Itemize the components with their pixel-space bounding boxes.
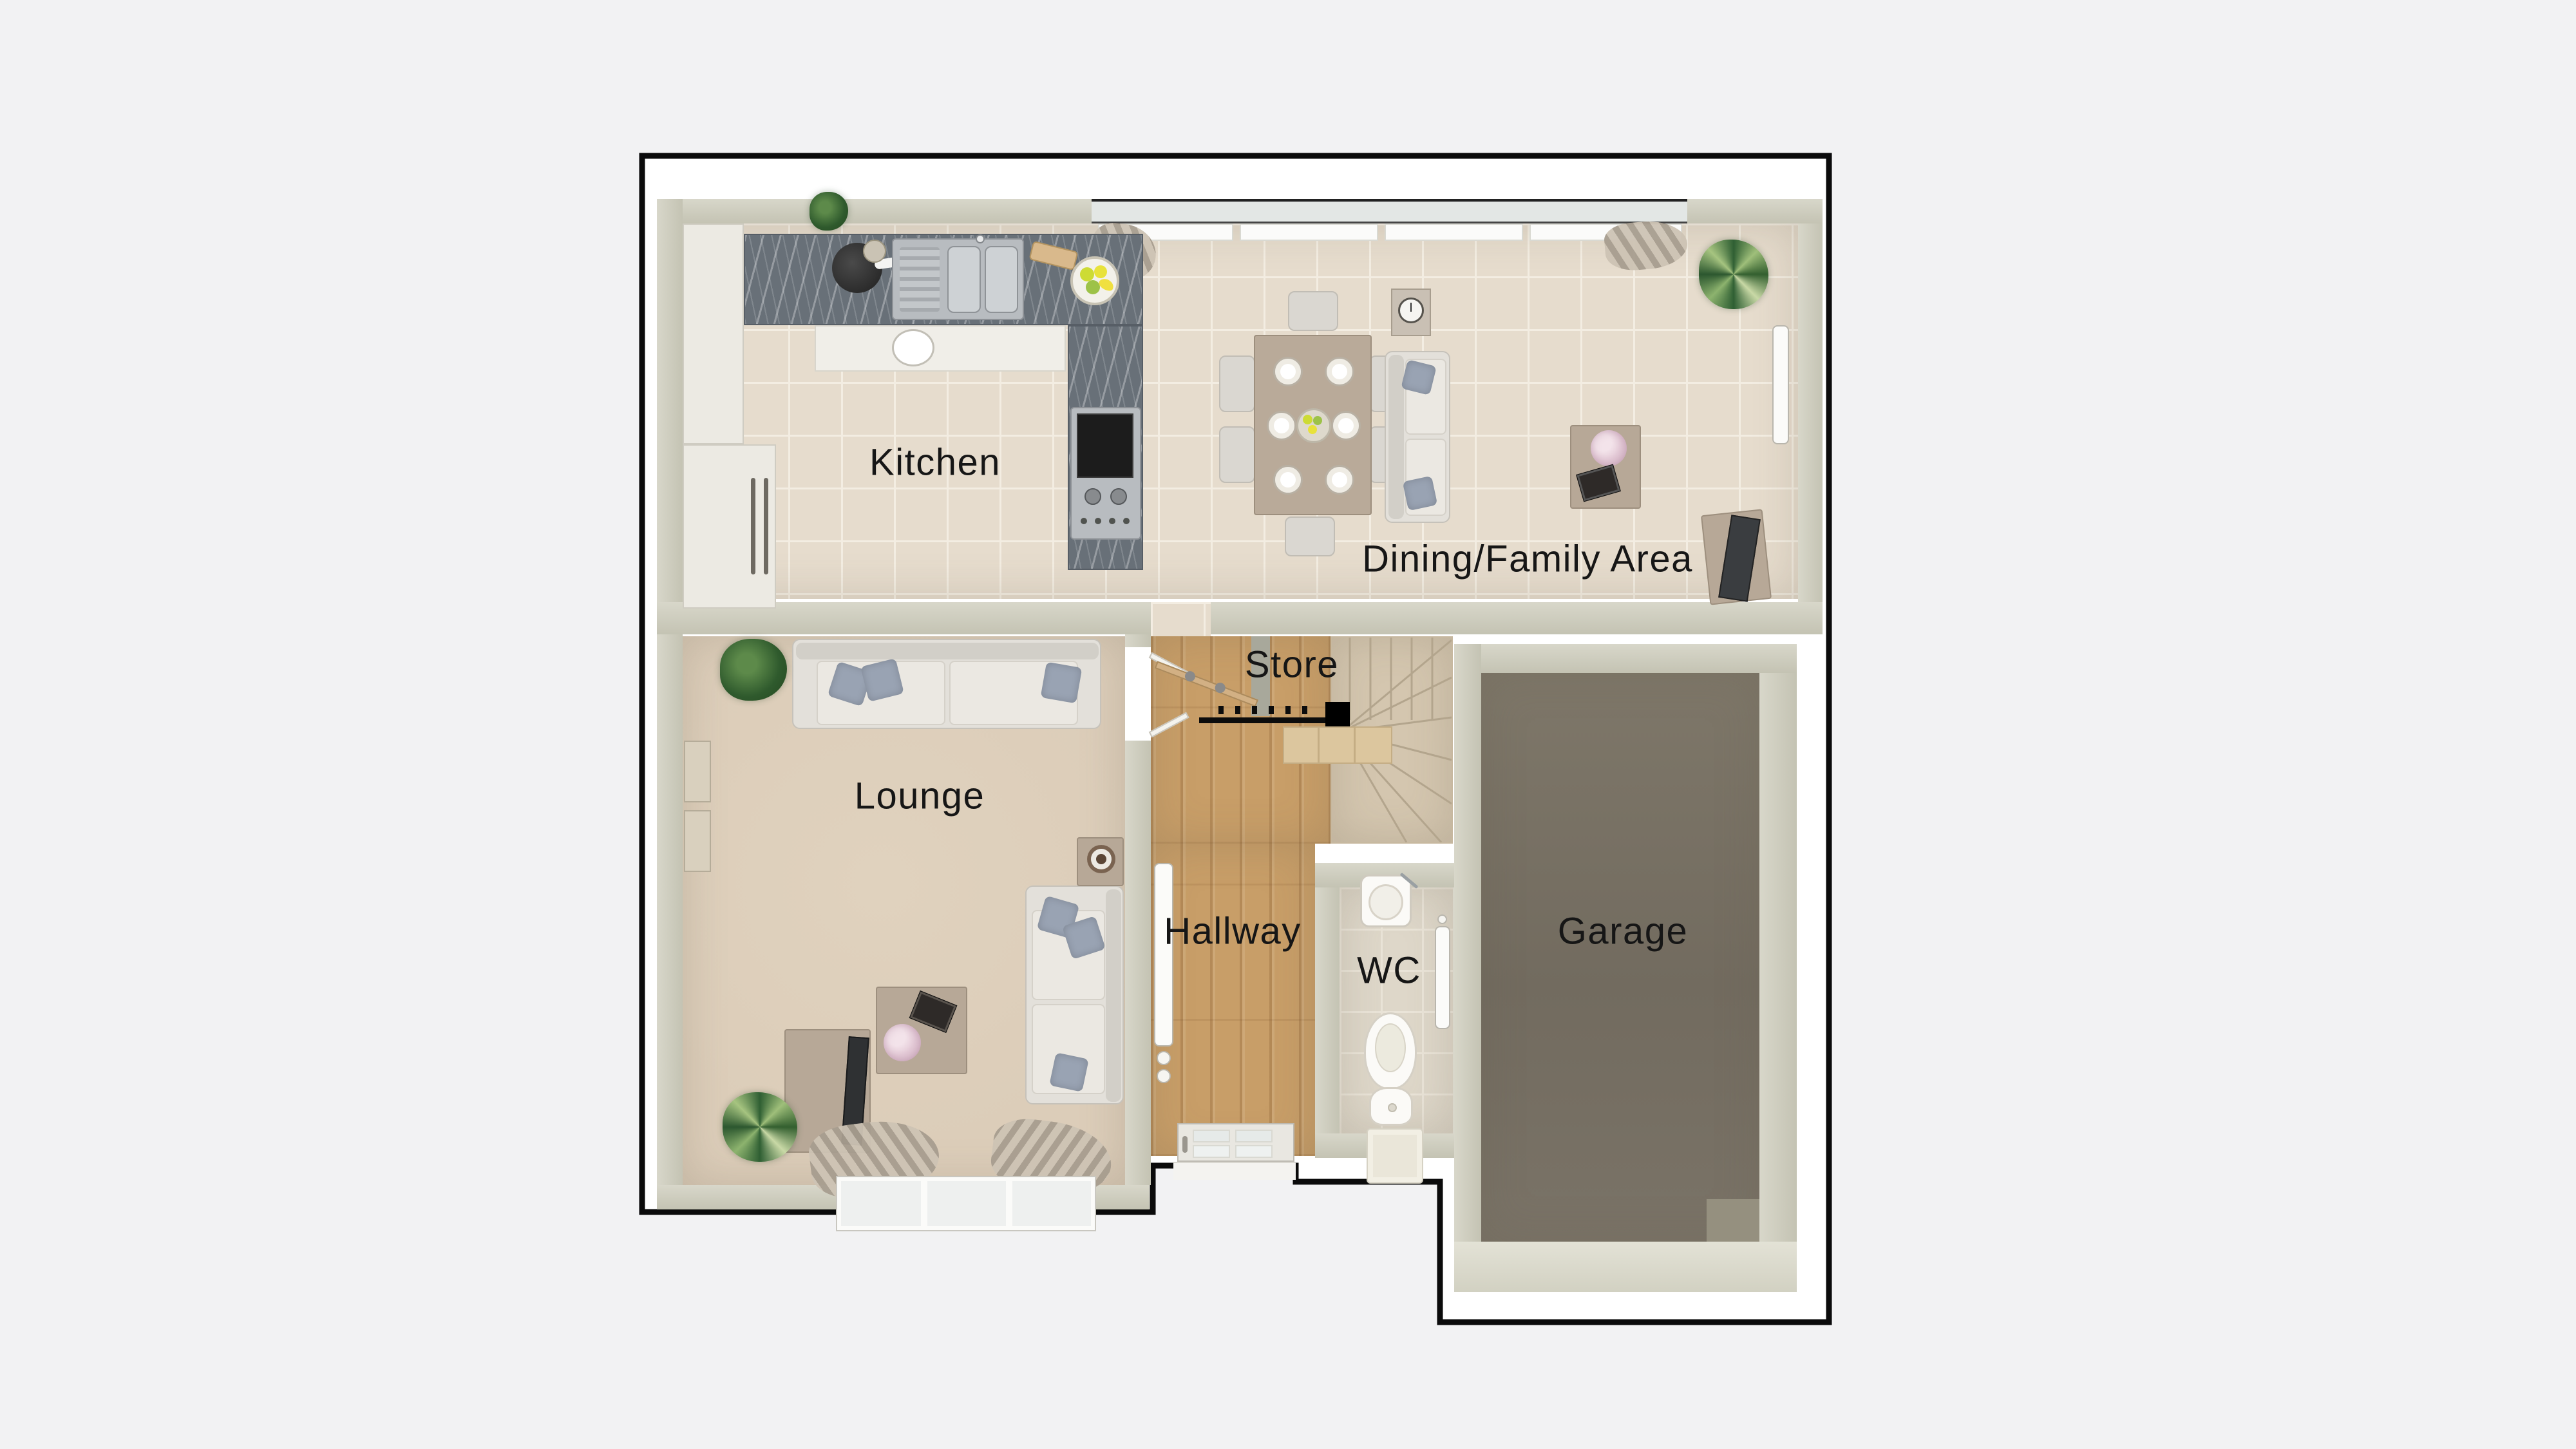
dining-table bbox=[1254, 335, 1372, 515]
wall-dining-right bbox=[1798, 223, 1823, 602]
kitchen-sink bbox=[892, 238, 1024, 320]
stair-rail-tick-1 bbox=[1218, 706, 1224, 714]
bifold-pane-2 bbox=[1240, 223, 1378, 241]
lounge-sofa-top bbox=[792, 639, 1101, 729]
side-table-flowers bbox=[1591, 430, 1627, 466]
garage-floor bbox=[1481, 673, 1759, 1242]
dining-plant bbox=[1699, 240, 1768, 309]
wall-garage-right bbox=[1759, 673, 1797, 1242]
room-label-wc: WC bbox=[1357, 949, 1421, 992]
stair-newel-post bbox=[1325, 702, 1350, 726]
kitchen-hallway-opening bbox=[1151, 602, 1211, 636]
room-label-store: Store bbox=[1245, 643, 1339, 687]
wall-garage-left bbox=[1454, 644, 1481, 1242]
room-label-lounge: Lounge bbox=[855, 775, 985, 818]
stair-rail-tick-4 bbox=[1269, 706, 1274, 714]
front-door bbox=[1177, 1123, 1294, 1162]
lounge-lamp bbox=[1087, 845, 1115, 873]
extractor-hood bbox=[892, 329, 934, 366]
lounge-wall-frame-1 bbox=[684, 741, 711, 802]
fruit-bowl bbox=[1070, 256, 1119, 305]
dining-chair-left-2 bbox=[1219, 426, 1255, 483]
wall-wc-left bbox=[1315, 887, 1340, 1158]
hallway-radiator-cap-2 bbox=[1157, 1069, 1171, 1083]
front-porch bbox=[1173, 1162, 1296, 1180]
hallway-radiator-cap-1 bbox=[1157, 1051, 1171, 1065]
wc-mat bbox=[1367, 1128, 1423, 1184]
bifold-door-glass bbox=[1092, 199, 1687, 223]
oven-hob-unit bbox=[1070, 407, 1141, 540]
lounge-bay-window bbox=[837, 1177, 1095, 1230]
utensil-jar bbox=[863, 240, 886, 263]
bifold-pane-3 bbox=[1385, 223, 1523, 241]
stair-bottom-steps bbox=[1283, 726, 1392, 764]
kitchen-base-units bbox=[815, 325, 1066, 372]
stair-rail-tick-6 bbox=[1302, 706, 1307, 714]
coffee-table-flowers bbox=[884, 1024, 921, 1061]
kitchen-cabinet-run bbox=[683, 223, 744, 444]
hallway-radiator bbox=[1154, 863, 1173, 1046]
wall-left bbox=[657, 199, 683, 1209]
stair-rail-tick-5 bbox=[1285, 706, 1291, 714]
room-label-garage: Garage bbox=[1558, 910, 1688, 953]
wc-toilet-seat bbox=[1364, 1012, 1417, 1090]
wc-basin bbox=[1360, 875, 1412, 927]
wall-strip-bottom bbox=[657, 602, 1823, 634]
dining-radiator bbox=[1772, 325, 1789, 444]
family-sofa bbox=[1385, 351, 1450, 523]
room-label-hallway: Hallway bbox=[1164, 910, 1302, 953]
hallway-floor-lower bbox=[1151, 844, 1315, 1156]
lounge-wall-frame-2 bbox=[684, 810, 711, 872]
garage-floor-step bbox=[1707, 1199, 1759, 1242]
stair-rail bbox=[1199, 717, 1336, 723]
room-label-dining: Dining/Family Area bbox=[1362, 538, 1693, 581]
lounge-sofa-right bbox=[1025, 885, 1124, 1104]
stair-rail-tick-2 bbox=[1235, 706, 1240, 714]
kitchen-cabinet-handle-1 bbox=[751, 478, 755, 574]
room-label-kitchen: Kitchen bbox=[869, 441, 1001, 484]
stair-rail-tick-3 bbox=[1252, 706, 1257, 714]
lounge-door-opening bbox=[1125, 647, 1151, 741]
wc-toilet-tank bbox=[1369, 1087, 1413, 1126]
floorplan-canvas: Kitchen Dining/Family Area Lounge Store … bbox=[0, 0, 2576, 1449]
wall-garage-top bbox=[1454, 644, 1797, 673]
dining-chair-left-1 bbox=[1219, 355, 1255, 412]
clock-stand bbox=[1391, 289, 1431, 336]
garage-door-threshold bbox=[1454, 1242, 1797, 1292]
wc-radiator-cap bbox=[1437, 914, 1447, 924]
kitchen-cabinet-lower bbox=[683, 444, 776, 609]
kitchen-cabinet-handle-2 bbox=[764, 478, 768, 574]
dining-chair-bottom bbox=[1285, 516, 1335, 556]
dining-chair-top bbox=[1288, 291, 1338, 331]
wc-radiator bbox=[1435, 926, 1450, 1029]
lounge-plant-bottom-left bbox=[723, 1092, 797, 1162]
